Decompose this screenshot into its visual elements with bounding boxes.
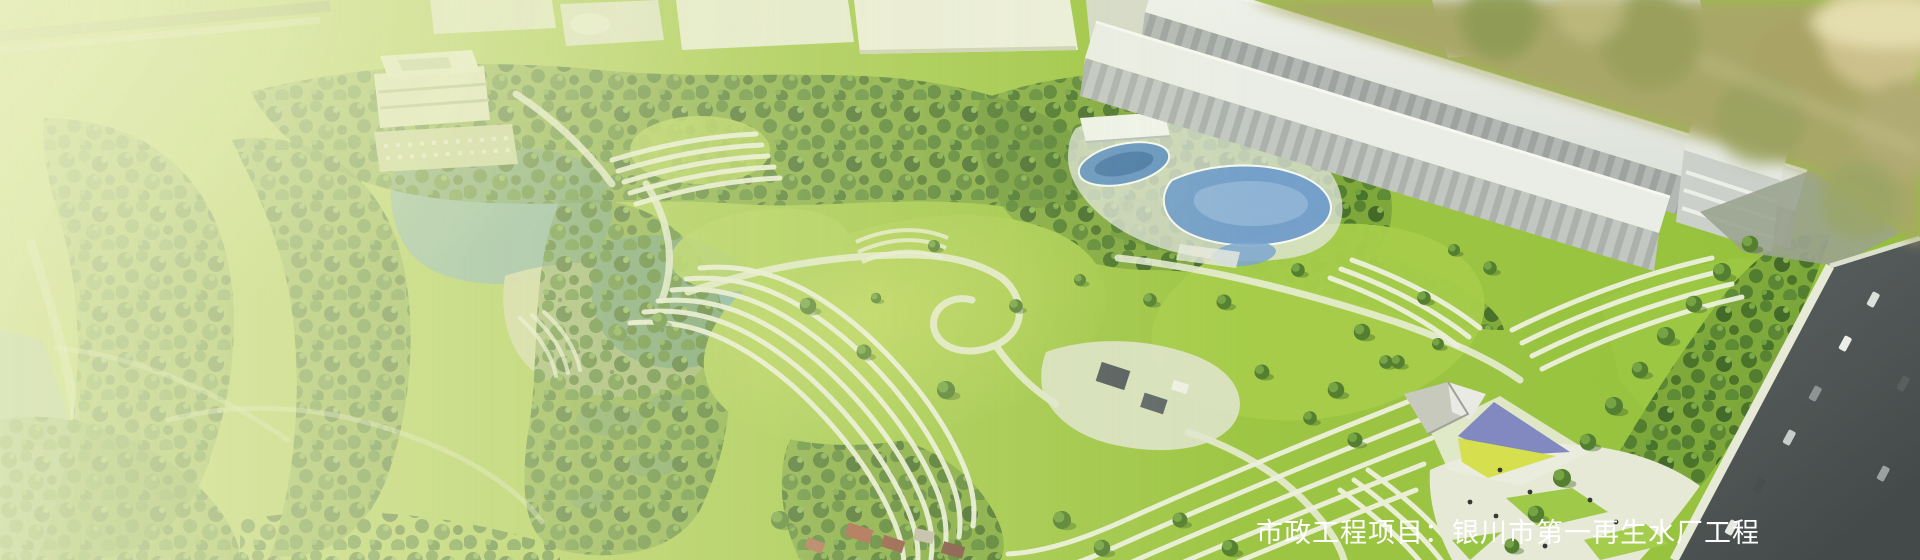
aerial-render-banner: 市政工程项目：银川市第一再生水厂工程	[0, 0, 1920, 560]
project-caption: 市政工程项目：银川市第一再生水厂工程	[1256, 519, 1760, 549]
park-aerial-scene	[0, 0, 1920, 560]
